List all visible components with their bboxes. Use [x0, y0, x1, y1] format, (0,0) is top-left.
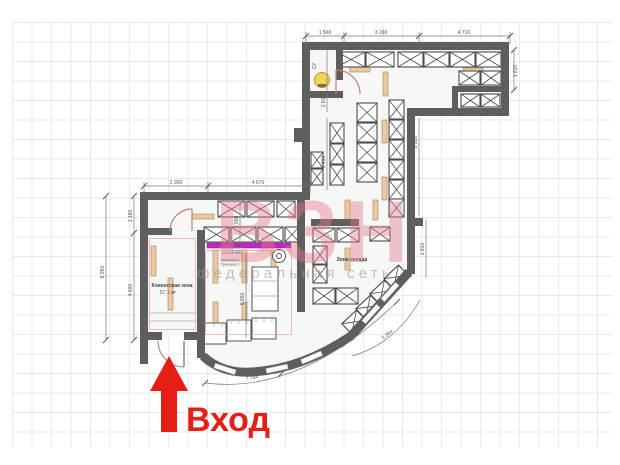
shelving-rack [481, 94, 500, 107]
shelving-rack [357, 103, 377, 122]
dim-left-inner-2: 4 600 [128, 284, 134, 297]
shelving-rack [481, 71, 501, 85]
entrance-label: Вход [186, 401, 270, 439]
dim-wc-height: 2 810 [321, 95, 327, 108]
dim-mid-height: 5 410 [321, 156, 327, 169]
watermark-subtitle: федеральная сеть [197, 265, 394, 282]
client-zone-label: Клиентская зона [151, 283, 192, 289]
shelving-rack [389, 160, 404, 179]
dim-arc-long: 7 794 [245, 374, 258, 381]
dim-top-2: 3 160 [375, 30, 388, 36]
shelving-rack [313, 288, 335, 304]
light-strip [151, 246, 156, 276]
light-strip [350, 67, 370, 72]
dim-top-3: 4 710 [458, 30, 471, 36]
dim-left-outer: 8 950 [100, 266, 106, 279]
shelving-rack [459, 71, 480, 85]
shelving-rack [330, 123, 344, 143]
dim-client-height: 5 950 [240, 293, 246, 306]
dim-left-inner-1: 1 180 [128, 210, 134, 223]
dim-storage-right: 8 920 [413, 136, 419, 149]
shelving-rack [461, 94, 480, 107]
light-strip [383, 72, 388, 96]
shelving-rack [389, 140, 404, 159]
shelving-rack [476, 52, 501, 67]
shelving-rack [330, 144, 344, 164]
shelving-rack [389, 100, 404, 119]
entrance-arrow-icon [150, 356, 188, 391]
dim-storage-lower: 2 810 [420, 243, 426, 256]
dim-right: 1 610 [513, 65, 519, 78]
shelving-rack [389, 120, 404, 139]
light-strip [192, 214, 214, 219]
shelving-rack [424, 52, 449, 67]
dim-topleft-1: 2 300 [170, 180, 183, 186]
shelving-rack [357, 143, 377, 162]
entrance-arrow-shaft [161, 390, 177, 432]
watermark: ВЗН федеральная сеть [197, 182, 414, 282]
shelving-rack [366, 52, 394, 67]
shelving-rack [357, 123, 377, 142]
shelving-rack [357, 163, 377, 182]
dim-top-1: 1 560 [319, 30, 332, 36]
dim-arc-diag: 3 394 [381, 329, 395, 341]
client-zone-area: 57,1 м² [160, 290, 177, 296]
floor-plan: 1 560 3 160 4 710 2 300 4 670 8 950 1 18… [0, 0, 620, 465]
light-strip [382, 120, 387, 143]
wc-label: СУ [312, 62, 318, 69]
shelving-rack [336, 288, 358, 304]
shelving-rack [398, 52, 423, 67]
shelving-rack [450, 52, 475, 67]
